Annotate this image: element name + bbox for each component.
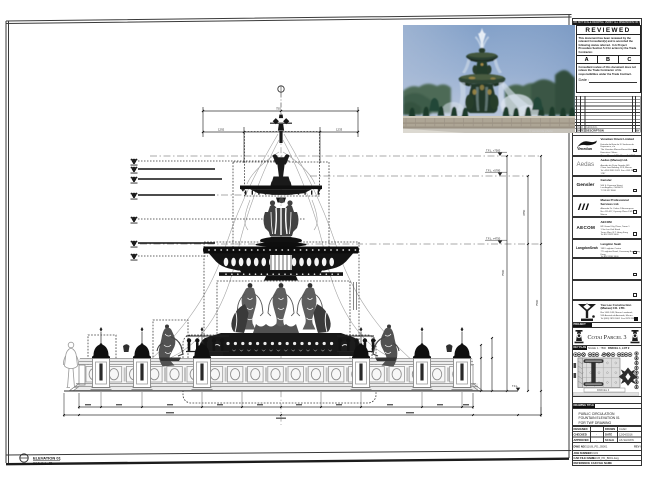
svg-text:BY: BY xyxy=(636,129,640,133)
svg-text:T.F.L. +5780: T.F.L. +5780 xyxy=(486,169,501,173)
svg-text:3103: 3103 xyxy=(592,451,598,455)
svg-text:T.F.L. +4750: T.F.L. +4750 xyxy=(486,237,501,241)
svg-text:-: - xyxy=(596,439,597,442)
svg-text:GENERAL: GENERAL xyxy=(586,126,598,129)
svg-text:CAAD: CAAD xyxy=(619,427,627,431)
svg-text:12/04/2016: 12/04/2016 xyxy=(619,432,633,436)
svg-text:1292: 1292 xyxy=(218,128,225,132)
svg-text:7500: 7500 xyxy=(535,299,539,306)
svg-text:DESIGNED: DESIGNED xyxy=(573,427,587,431)
svg-text:T.F.L.: T.F.L. xyxy=(512,384,518,388)
svg-text:DRAWN: DRAWN xyxy=(605,427,615,431)
svg-text:COTAI PARCEL 3: COTAI PARCEL 3 xyxy=(587,334,626,340)
svg-text:SCALE 1 : 25: SCALE 1 : 25 xyxy=(33,462,53,466)
svg-text:AS SHOWN: AS SHOWN xyxy=(619,438,634,442)
svg-text:CHECKED: CHECKED xyxy=(573,432,586,436)
svg-text:750: 750 xyxy=(276,107,281,111)
svg-text:311UB_PD_B001.dwg: 311UB_PD_B001.dwg xyxy=(592,456,619,460)
svg-text:1233: 1233 xyxy=(336,128,343,132)
svg-text:DATE: DATE xyxy=(577,129,584,133)
svg-text:4750: 4750 xyxy=(522,209,526,216)
svg-text:SCALE: SCALE xyxy=(605,438,614,442)
svg-text:APPROVED: APPROVED xyxy=(573,438,588,442)
svg-text:Venetian: Venetian xyxy=(577,146,593,150)
svg-text:311UB_PD_JB001: 311UB_PD_JB001 xyxy=(585,445,608,449)
svg-text:REV 0: REV 0 xyxy=(634,445,642,449)
svg-text:REFERENCE CAD FILE NAME: REFERENCE CAD FILE NAME xyxy=(573,461,612,465)
svg-text:© concorde photo: © concorde photo xyxy=(529,129,553,133)
svg-text:DESCRIPTION: DESCRIPTION xyxy=(586,129,604,133)
svg-text:-: - xyxy=(596,433,597,436)
svg-text:JOB NUMBER: JOB NUMBER xyxy=(573,451,591,455)
svg-text:T.F.L. +7500: T.F.L. +7500 xyxy=(486,149,501,153)
svg-text:PARCEL 3: PARCEL 3 xyxy=(597,388,610,392)
svg-text:7500: 7500 xyxy=(501,269,505,276)
svg-text:DWG NO: DWG NO xyxy=(573,445,584,449)
svg-text:ELEVATION 01: ELEVATION 01 xyxy=(33,456,62,461)
svg-text:06/16: 06/16 xyxy=(577,126,584,129)
svg-text:DATE: DATE xyxy=(605,432,612,436)
